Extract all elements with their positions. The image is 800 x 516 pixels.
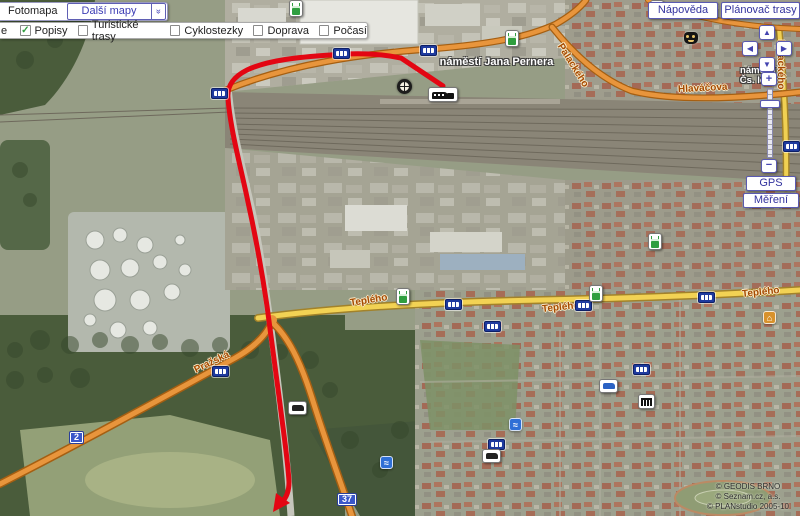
checkbox-label-cyklostezky[interactable]: Cyklostezky [184, 25, 243, 37]
bus-stop-icon[interactable] [783, 141, 800, 152]
mereni-button[interactable]: Měření [743, 193, 799, 208]
bus-stop-icon[interactable] [212, 366, 229, 377]
bus-stop-icon[interactable] [420, 45, 437, 56]
bus-stop-icon[interactable] [633, 364, 650, 375]
dalsi-mapy-dropdown[interactable]: Další mapy » [67, 3, 166, 20]
checkbox-label-doprava[interactable]: Doprava [267, 25, 309, 37]
checkbox-label-pocasi[interactable]: Počasí [333, 25, 367, 37]
pan-up-button[interactable]: ▲ [759, 25, 775, 40]
cut-off-label: e [1, 25, 7, 37]
checkbox-pocasi[interactable] [319, 25, 329, 36]
tab-fotomapa[interactable]: Fotomapa [0, 3, 66, 20]
bus-poi-icon[interactable] [482, 449, 501, 463]
copyright-line: © PLANstudio 2005-10 [698, 502, 798, 512]
pan-left-button[interactable]: ◀ [742, 41, 758, 56]
road-number-badge-2: 2 [70, 432, 83, 443]
chevron-down-icon[interactable]: » [151, 4, 165, 19]
checkbox-label-popisy[interactable]: Popisy [35, 25, 68, 37]
copyright-line: © Seznam.cz, a.s. [698, 492, 798, 502]
car-poi-icon[interactable] [599, 379, 618, 393]
plus-icon: + [766, 73, 772, 85]
house-poi-icon[interactable]: ⌂ [763, 311, 776, 324]
bus-stop-icon[interactable] [333, 48, 350, 59]
bus-stop-icon[interactable] [575, 300, 592, 311]
bus-stop-icon[interactable] [211, 88, 228, 99]
layer-toggle-bar: e ✓ Popisy Turistické trasy Cyklostezky … [0, 22, 368, 39]
place-label-namesti-jana-pernera: náměstí Jana Pernera [424, 56, 569, 68]
pool-poi-icon[interactable]: ≈ [509, 418, 522, 431]
factory-poi-icon[interactable] [638, 394, 655, 409]
pan-down-button[interactable]: ▼ [759, 57, 775, 72]
zoom-out-button[interactable]: − [761, 159, 777, 173]
arrow-right-icon: ▶ [781, 44, 787, 53]
bus-stop-icon[interactable] [484, 321, 501, 332]
pan-right-button[interactable]: ▶ [776, 41, 792, 56]
minus-icon: − [766, 159, 772, 171]
gps-button[interactable]: GPS [746, 176, 796, 191]
map-copyright: © GEODIS BRNO © Seznam.cz, a.s. © PLANst… [698, 482, 798, 512]
arrow-left-icon: ◀ [747, 44, 753, 53]
trolleybus-stop-icon[interactable] [505, 30, 519, 47]
planovac-trasy-button[interactable]: Plánovač trasy [721, 2, 800, 19]
trolleybus-stop-icon[interactable] [648, 233, 662, 250]
trolleybus-stop-icon[interactable] [589, 285, 603, 302]
dalsi-mapy-label: Další mapy [68, 4, 151, 19]
map-background[interactable] [0, 0, 800, 516]
zoom-in-button[interactable]: + [761, 72, 777, 86]
bus-stop-icon[interactable] [445, 299, 462, 310]
zoom-slider-handle[interactable] [760, 100, 780, 108]
vehicle-poi-icon[interactable] [288, 401, 307, 415]
bus-stop-icon[interactable] [698, 292, 715, 303]
train-station-icon[interactable] [428, 87, 458, 102]
road-number-badge-37: 37 [338, 494, 356, 505]
copyright-line: © GEODIS BRNO [698, 482, 798, 492]
zoom-slider-track[interactable] [767, 88, 773, 158]
theater-masks-icon[interactable] [684, 32, 698, 44]
napoveda-button[interactable]: Nápověda [648, 2, 718, 19]
checkbox-cyklostezky[interactable] [170, 25, 180, 36]
pool-poi-icon[interactable]: ≈ [380, 456, 393, 469]
trolleybus-stop-icon[interactable] [289, 0, 303, 17]
map-application: náměstí Jana Pernera náměstí Čs. legií H… [0, 0, 800, 516]
checkbox-popisy[interactable]: ✓ [20, 25, 30, 36]
checkbox-turisticke-trasy[interactable] [78, 25, 88, 36]
checkbox-label-turisticke-trasy[interactable]: Turistické trasy [92, 19, 160, 43]
ship-wheel-icon[interactable] [397, 79, 412, 94]
checkbox-doprava[interactable] [253, 25, 263, 36]
arrow-up-icon: ▲ [763, 28, 771, 37]
trolleybus-stop-icon[interactable] [396, 288, 410, 305]
arrow-down-icon: ▼ [763, 60, 771, 69]
